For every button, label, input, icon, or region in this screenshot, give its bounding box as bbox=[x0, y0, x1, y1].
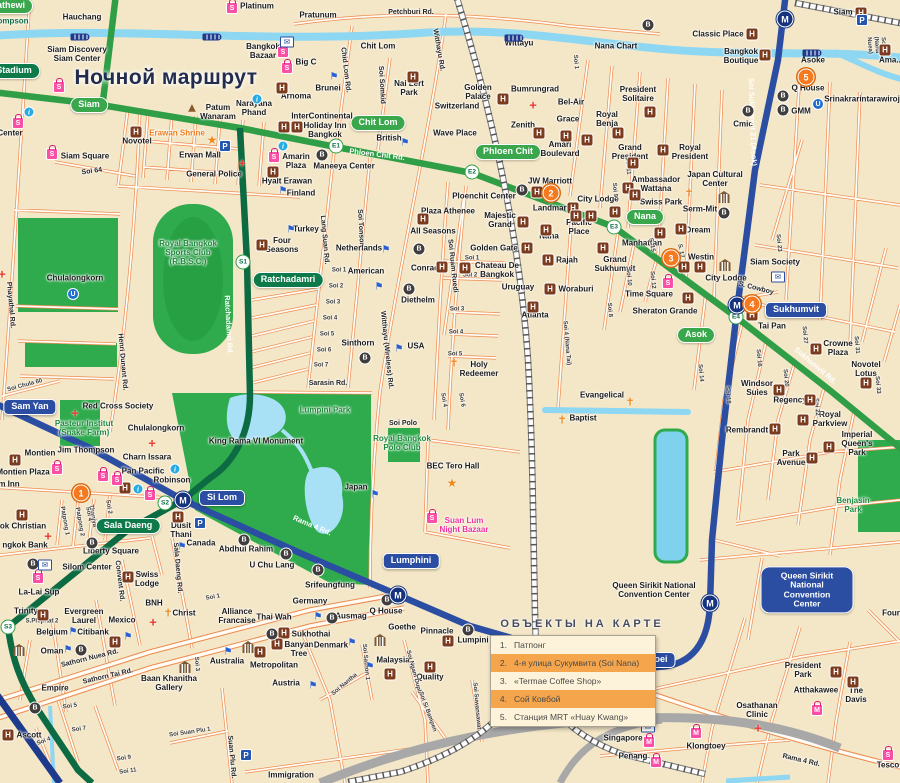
mrt-station-si-lom: Si Lom bbox=[199, 490, 245, 506]
biz-icon: B bbox=[462, 624, 475, 637]
hotel-icon: H bbox=[424, 661, 437, 674]
legend-item-label: «Termae Coffee Shop» bbox=[514, 676, 601, 686]
star-icon: ★ bbox=[447, 476, 458, 490]
biz-icon: B bbox=[777, 104, 790, 117]
legend-item-label: Патпонг bbox=[514, 640, 546, 650]
flag-icon: ⚑ bbox=[178, 542, 187, 553]
shop-icon: S bbox=[46, 148, 58, 160]
hotel-icon: H bbox=[797, 414, 810, 427]
biz-icon: B bbox=[642, 19, 655, 32]
post-icon: ✉ bbox=[771, 272, 785, 283]
shop-icon: S bbox=[53, 81, 65, 93]
bts-badge-s1: S1 bbox=[236, 255, 251, 270]
star-icon: ★ bbox=[207, 133, 218, 147]
hotel-icon: H bbox=[769, 423, 782, 436]
hotel-icon: H bbox=[521, 242, 534, 255]
hotel-icon: H bbox=[109, 636, 122, 649]
flag-icon: ⚑ bbox=[69, 627, 78, 638]
hotel-icon: H bbox=[654, 227, 667, 240]
mrt-station-lumphini: Lumphini bbox=[383, 553, 440, 569]
hosp-icon: + bbox=[44, 529, 52, 544]
hotel-icon: H bbox=[16, 509, 29, 522]
mrt-station-sam-yan: Sam Yan bbox=[3, 399, 56, 415]
univ-icon: U bbox=[67, 288, 79, 300]
legend-item-4: 4.Сой Ковбой bbox=[491, 690, 655, 708]
biz-icon: B bbox=[29, 702, 42, 715]
church-icon: ✝ bbox=[449, 357, 458, 370]
hosp-icon: + bbox=[0, 267, 6, 282]
market-icon: M bbox=[643, 736, 655, 748]
biz-icon: B bbox=[238, 534, 251, 547]
biz-icon: B bbox=[266, 628, 279, 641]
bts-station-phloen-chit: Phloen Chit bbox=[475, 144, 541, 160]
hotel-icon: H bbox=[773, 384, 786, 397]
hotel-icon: H bbox=[517, 216, 530, 229]
flag-icon: ⚑ bbox=[224, 647, 233, 658]
legend-title: ОБЪЕКТЫ НА КАРТЕ bbox=[500, 618, 663, 630]
hotel-icon: H bbox=[627, 157, 640, 170]
hotel-icon: H bbox=[804, 394, 817, 407]
boat-icon bbox=[203, 34, 222, 41]
hotel-icon: H bbox=[407, 71, 420, 84]
info-icon: i bbox=[278, 141, 289, 152]
hotel-icon: H bbox=[847, 676, 860, 689]
hotel-icon: H bbox=[497, 93, 510, 106]
flag-icon: ⚑ bbox=[395, 344, 404, 355]
flag-icon: ⚑ bbox=[401, 138, 410, 149]
hotel-icon: H bbox=[542, 254, 555, 267]
hotel-icon: H bbox=[675, 223, 688, 236]
flag-icon: ⚑ bbox=[124, 632, 133, 643]
hotel-icon: H bbox=[612, 127, 625, 140]
route-poi-1: 1 bbox=[73, 485, 90, 502]
hotel-icon: H bbox=[830, 666, 843, 679]
hotel-icon: H bbox=[644, 106, 657, 119]
hotel-icon: H bbox=[597, 242, 610, 255]
legend-item-number: 3. bbox=[497, 676, 507, 686]
hotel-icon: H bbox=[276, 82, 289, 95]
biz-icon: B bbox=[75, 644, 88, 657]
park-icon: P bbox=[856, 14, 868, 26]
boat-icon bbox=[71, 34, 90, 41]
bts-badge-s2: S2 bbox=[158, 496, 173, 511]
biz-icon: B bbox=[280, 548, 293, 561]
shop-icon: S bbox=[426, 512, 438, 524]
legend-item-3: 3.«Termae Coffee Shop» bbox=[491, 672, 655, 690]
church-icon: ✝ bbox=[684, 187, 693, 200]
info-icon: i bbox=[133, 484, 144, 495]
market-icon: M bbox=[690, 727, 702, 739]
shop-icon: S bbox=[111, 474, 123, 486]
legend-box: 1.Патпонг2.4-я улица Сукумвита (Soi Nana… bbox=[490, 635, 656, 727]
church-icon: ✝ bbox=[557, 414, 566, 427]
hotel-icon: H bbox=[609, 206, 622, 219]
legend-item-number: 5. bbox=[497, 712, 507, 722]
bts-station-athewi: athewi bbox=[0, 0, 33, 14]
biz-icon: B bbox=[326, 612, 339, 625]
shop-icon: S bbox=[226, 2, 238, 14]
flag-icon: ⚑ bbox=[314, 612, 323, 623]
hotel-icon: H bbox=[657, 144, 670, 157]
legend-item-1: 1.Патпонг bbox=[491, 636, 655, 654]
church-icon: ✝ bbox=[625, 396, 634, 409]
hotel-icon: H bbox=[436, 261, 449, 274]
hotel-icon: H bbox=[172, 511, 185, 524]
route-poi-2: 2 bbox=[543, 185, 560, 202]
hotel-icon: H bbox=[806, 452, 819, 465]
bts-station-nana: Nana bbox=[626, 209, 664, 225]
mrt-station-queen-sirikit-national-convention-ce: Queen Sirikit National Convention Center bbox=[761, 566, 854, 613]
flag-icon: ⚑ bbox=[287, 225, 296, 236]
info-icon: i bbox=[252, 94, 263, 105]
hotel-icon: H bbox=[442, 635, 455, 648]
hotel-icon: H bbox=[585, 210, 598, 223]
shop-icon: S bbox=[32, 572, 44, 584]
bts-station-sala-daeng: Sala Daeng bbox=[96, 518, 161, 534]
route-poi-4: 4 bbox=[744, 296, 761, 313]
bts-station-chit-lom: Chit Lom bbox=[351, 115, 406, 131]
bts-station-stadium: Stadium bbox=[0, 63, 40, 79]
hotel-icon: H bbox=[384, 668, 397, 681]
flag-icon: ⚑ bbox=[371, 490, 380, 501]
biz-icon: B bbox=[413, 243, 426, 256]
shop-icon: S bbox=[882, 749, 894, 761]
hosp-icon: + bbox=[238, 156, 246, 171]
shop-icon: S bbox=[662, 277, 674, 289]
park-icon: P bbox=[219, 140, 231, 152]
hotel-icon: H bbox=[540, 224, 553, 237]
hotel-icon: H bbox=[291, 121, 304, 134]
hosp-icon: + bbox=[148, 436, 156, 451]
market-icon: M bbox=[650, 756, 662, 768]
bts-badge-s3: S3 bbox=[1, 620, 16, 635]
hotel-icon: H bbox=[267, 166, 280, 179]
hotel-icon: H bbox=[678, 261, 691, 274]
hotel-icon: H bbox=[527, 301, 540, 314]
hosp-icon: + bbox=[149, 615, 157, 630]
roads-layer bbox=[0, 0, 900, 783]
info-icon: i bbox=[170, 464, 181, 475]
mrt-station-icon: M bbox=[390, 587, 407, 604]
route-poi-3: 3 bbox=[663, 250, 680, 267]
hotel-icon: H bbox=[9, 454, 22, 467]
biz-icon: B bbox=[316, 149, 329, 162]
univ-icon: U bbox=[812, 98, 824, 110]
mrt-station-sukhumvit: Sukhumvit bbox=[765, 302, 827, 318]
hotel-icon: H bbox=[533, 127, 546, 140]
hotel-icon: H bbox=[810, 343, 823, 356]
info-icon: i bbox=[24, 107, 35, 118]
hotel-icon: H bbox=[459, 262, 472, 275]
hotel-icon: H bbox=[256, 239, 269, 252]
biz-icon: B bbox=[516, 184, 529, 197]
hotel-icon: H bbox=[37, 609, 50, 622]
flag-icon: ⚑ bbox=[309, 681, 318, 692]
hotel-icon: H bbox=[759, 49, 772, 62]
bts-badge-e3: E3 bbox=[607, 220, 622, 235]
shop-icon: S bbox=[144, 489, 156, 501]
hotel-icon: H bbox=[122, 571, 135, 584]
hosp-icon: + bbox=[529, 98, 537, 113]
park-icon: P bbox=[240, 749, 252, 761]
shop-icon: S bbox=[51, 463, 63, 475]
flag-icon: ⚑ bbox=[375, 282, 384, 293]
hotel-icon: H bbox=[130, 126, 143, 139]
boat-icon bbox=[505, 35, 524, 42]
church-icon: ✝ bbox=[163, 607, 172, 620]
bts-station-asok: Asok bbox=[677, 327, 715, 343]
hotel-icon: H bbox=[544, 283, 557, 296]
shop-icon: S bbox=[268, 151, 280, 163]
mrt-station-icon: M bbox=[702, 595, 719, 612]
bts-station-ratchadamri: Ratchadamri bbox=[253, 272, 324, 288]
flag-icon: ⚑ bbox=[348, 638, 357, 649]
shop-icon: S bbox=[12, 117, 24, 129]
shop-icon: S bbox=[97, 470, 109, 482]
legend-item-number: 1. bbox=[497, 640, 507, 650]
hotel-icon: H bbox=[560, 130, 573, 143]
flag-icon: ⚑ bbox=[382, 245, 391, 256]
biz-icon: B bbox=[86, 537, 99, 550]
legend-item-label: 4-я улица Сукумвита (Soi Nana) bbox=[514, 658, 639, 668]
bts-badge-e1: E1 bbox=[329, 139, 344, 154]
legend-item-number: 4. bbox=[497, 694, 507, 704]
hosp-icon: + bbox=[71, 406, 79, 421]
bts-badge-e2: E2 bbox=[465, 165, 480, 180]
biz-icon: B bbox=[718, 207, 731, 220]
mrt-station-icon: M bbox=[777, 11, 794, 28]
biz-icon: B bbox=[359, 352, 372, 365]
legend-item-2: 2.4-я улица Сукумвита (Soi Nana) bbox=[491, 654, 655, 672]
bts-station-siam: Siam bbox=[70, 97, 108, 113]
post-icon: ✉ bbox=[280, 37, 294, 48]
post-icon: ✉ bbox=[38, 560, 52, 571]
hosp-icon: + bbox=[754, 721, 762, 736]
hotel-icon: H bbox=[278, 121, 291, 134]
hotel-icon: H bbox=[879, 44, 892, 57]
flag-icon: ⚑ bbox=[64, 645, 73, 656]
route-poi-5: 5 bbox=[798, 69, 815, 86]
flag-icon: ⚑ bbox=[366, 662, 375, 673]
biz-icon: B bbox=[312, 564, 325, 577]
bangkok-night-route-map: ОБЪЕКТЫ НА КАРТЕ 1.Патпонг2.4-я улица Су… bbox=[0, 0, 900, 783]
boat-icon bbox=[803, 50, 822, 57]
hotel-icon: H bbox=[682, 292, 695, 305]
shop-icon: S bbox=[277, 46, 289, 58]
hotel-icon: H bbox=[823, 441, 836, 454]
flag-icon: ⚑ bbox=[330, 72, 339, 83]
flag-icon: ⚑ bbox=[279, 186, 288, 197]
hotel-icon: H bbox=[2, 729, 15, 742]
hotel-icon: H bbox=[694, 261, 707, 274]
biz-icon: B bbox=[742, 105, 755, 118]
hotel-icon: H bbox=[581, 134, 594, 147]
hotel-icon: H bbox=[570, 210, 583, 223]
biz-icon: B bbox=[403, 283, 416, 296]
shop-icon: S bbox=[281, 62, 293, 74]
mrt-station-icon: M bbox=[175, 492, 192, 509]
hotel-icon: H bbox=[629, 189, 642, 202]
hotel-icon: H bbox=[746, 28, 759, 41]
hotel-icon: H bbox=[254, 646, 267, 659]
biz-icon: B bbox=[777, 90, 790, 103]
legend-item-label: Станция MRT «Huay Kwang» bbox=[514, 712, 628, 722]
legend-item-label: Сой Ковбой bbox=[514, 694, 560, 704]
hotel-icon: H bbox=[417, 213, 430, 226]
legend-item-number: 2. bbox=[497, 658, 507, 668]
park-icon: P bbox=[194, 517, 206, 529]
market-icon: M bbox=[811, 704, 823, 716]
hotel-icon: H bbox=[860, 377, 873, 390]
temple-icon: ▲ bbox=[188, 103, 196, 114]
legend-item-5: 5.Станция MRT «Huay Kwang» bbox=[491, 708, 655, 726]
